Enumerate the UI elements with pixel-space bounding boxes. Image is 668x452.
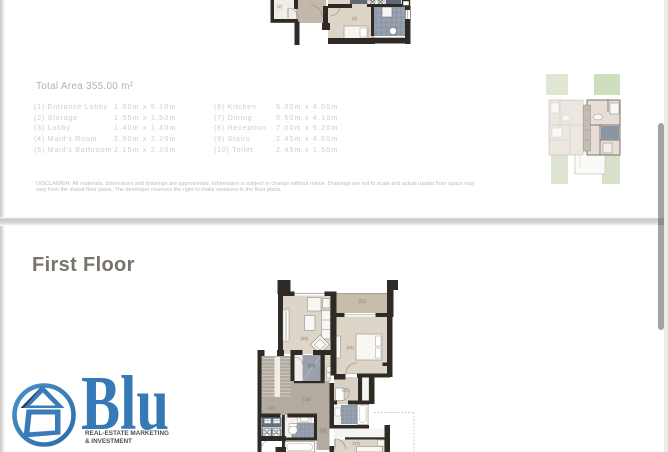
svg-text:(17): (17) — [353, 441, 361, 446]
svg-text:& INVESTMENT: & INVESTMENT — [85, 438, 132, 445]
svg-text:(20): (20) — [301, 336, 309, 341]
svg-text:(4): (4) — [352, 16, 358, 21]
svg-text:(22): (22) — [359, 299, 367, 304]
svg-text:(23): (23) — [303, 397, 311, 402]
svg-text:(18): (18) — [268, 406, 276, 411]
svg-text:(25): (25) — [342, 388, 350, 393]
svg-text:(2): (2) — [277, 4, 283, 9]
svg-text:(21): (21) — [347, 345, 355, 350]
svg-text:(24): (24) — [308, 363, 316, 368]
svg-text:REAL-ESTATE MARKETING: REAL-ESTATE MARKETING — [85, 430, 169, 437]
